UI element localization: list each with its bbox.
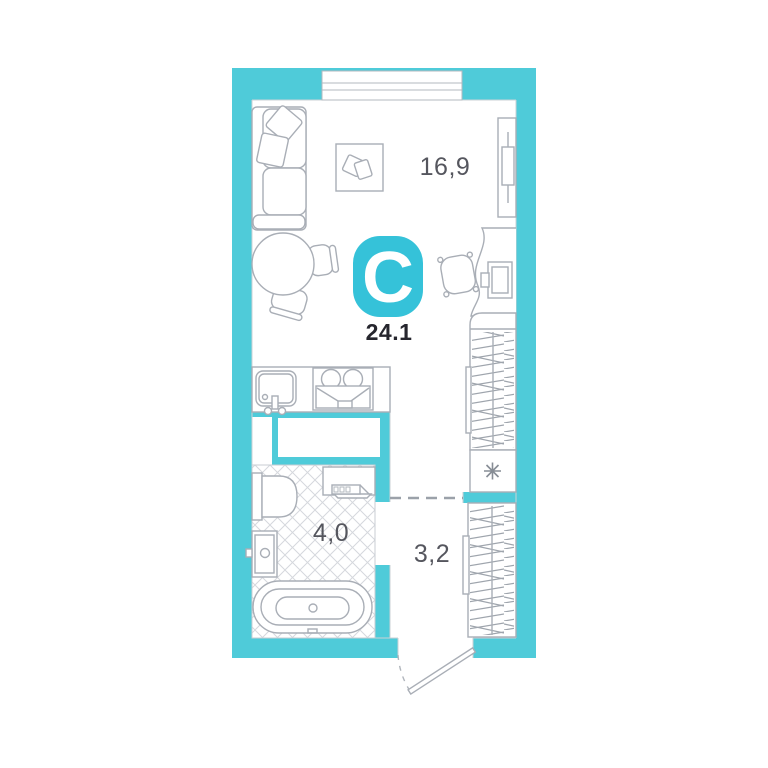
bathtub-icon	[253, 581, 372, 633]
logo-letter: C	[362, 238, 414, 318]
stove-icon	[313, 368, 373, 410]
faucet-icon	[279, 408, 286, 415]
window	[322, 71, 462, 100]
door-swing-arc	[398, 655, 410, 691]
desk-chair-icon	[437, 252, 478, 297]
wall-bottom	[232, 638, 398, 658]
wall-hallway-stub	[463, 492, 536, 503]
fridge-icon	[470, 450, 516, 492]
hallway-area-label: 3,2	[414, 540, 450, 568]
coffee-table-icon	[336, 144, 383, 191]
wall-bathroom-right-upper	[375, 465, 390, 502]
sliding-door-icon	[463, 536, 469, 594]
bathroom	[246, 465, 375, 638]
dining-table-icon	[252, 233, 314, 295]
duct-niche-left	[252, 417, 272, 465]
tv-icon	[498, 118, 516, 217]
sliding-door-icon	[466, 367, 471, 433]
entrance-door-icon	[398, 648, 475, 694]
wall-right	[516, 68, 536, 658]
door-leaf	[408, 648, 475, 694]
duct-niche-main	[278, 418, 380, 457]
fridge-marker-icon	[484, 463, 501, 480]
pillow-icon	[256, 133, 289, 168]
sofa-icon	[252, 105, 306, 230]
wall-bathroom-right-lower	[375, 565, 390, 638]
toilet-icon	[252, 473, 297, 520]
wall-left	[232, 68, 252, 658]
wardrobe-icon	[463, 503, 516, 637]
living-room-area-label: 16,9	[420, 153, 471, 181]
bathroom-area-label: 4,0	[313, 519, 349, 547]
floor-plan-page: C 24.1 16,9 4,0 3,2	[0, 0, 768, 768]
floor-plan: C 24.1 16,9 4,0 3,2	[0, 0, 768, 768]
total-area-label: 24.1	[366, 319, 413, 345]
faucet-icon	[246, 549, 252, 557]
logo-badge: C	[353, 236, 423, 318]
washing-machine-icon	[323, 467, 375, 498]
faucet-icon	[265, 408, 272, 415]
wall-bottom-corner	[473, 638, 536, 658]
wardrobe-icon	[466, 313, 516, 450]
